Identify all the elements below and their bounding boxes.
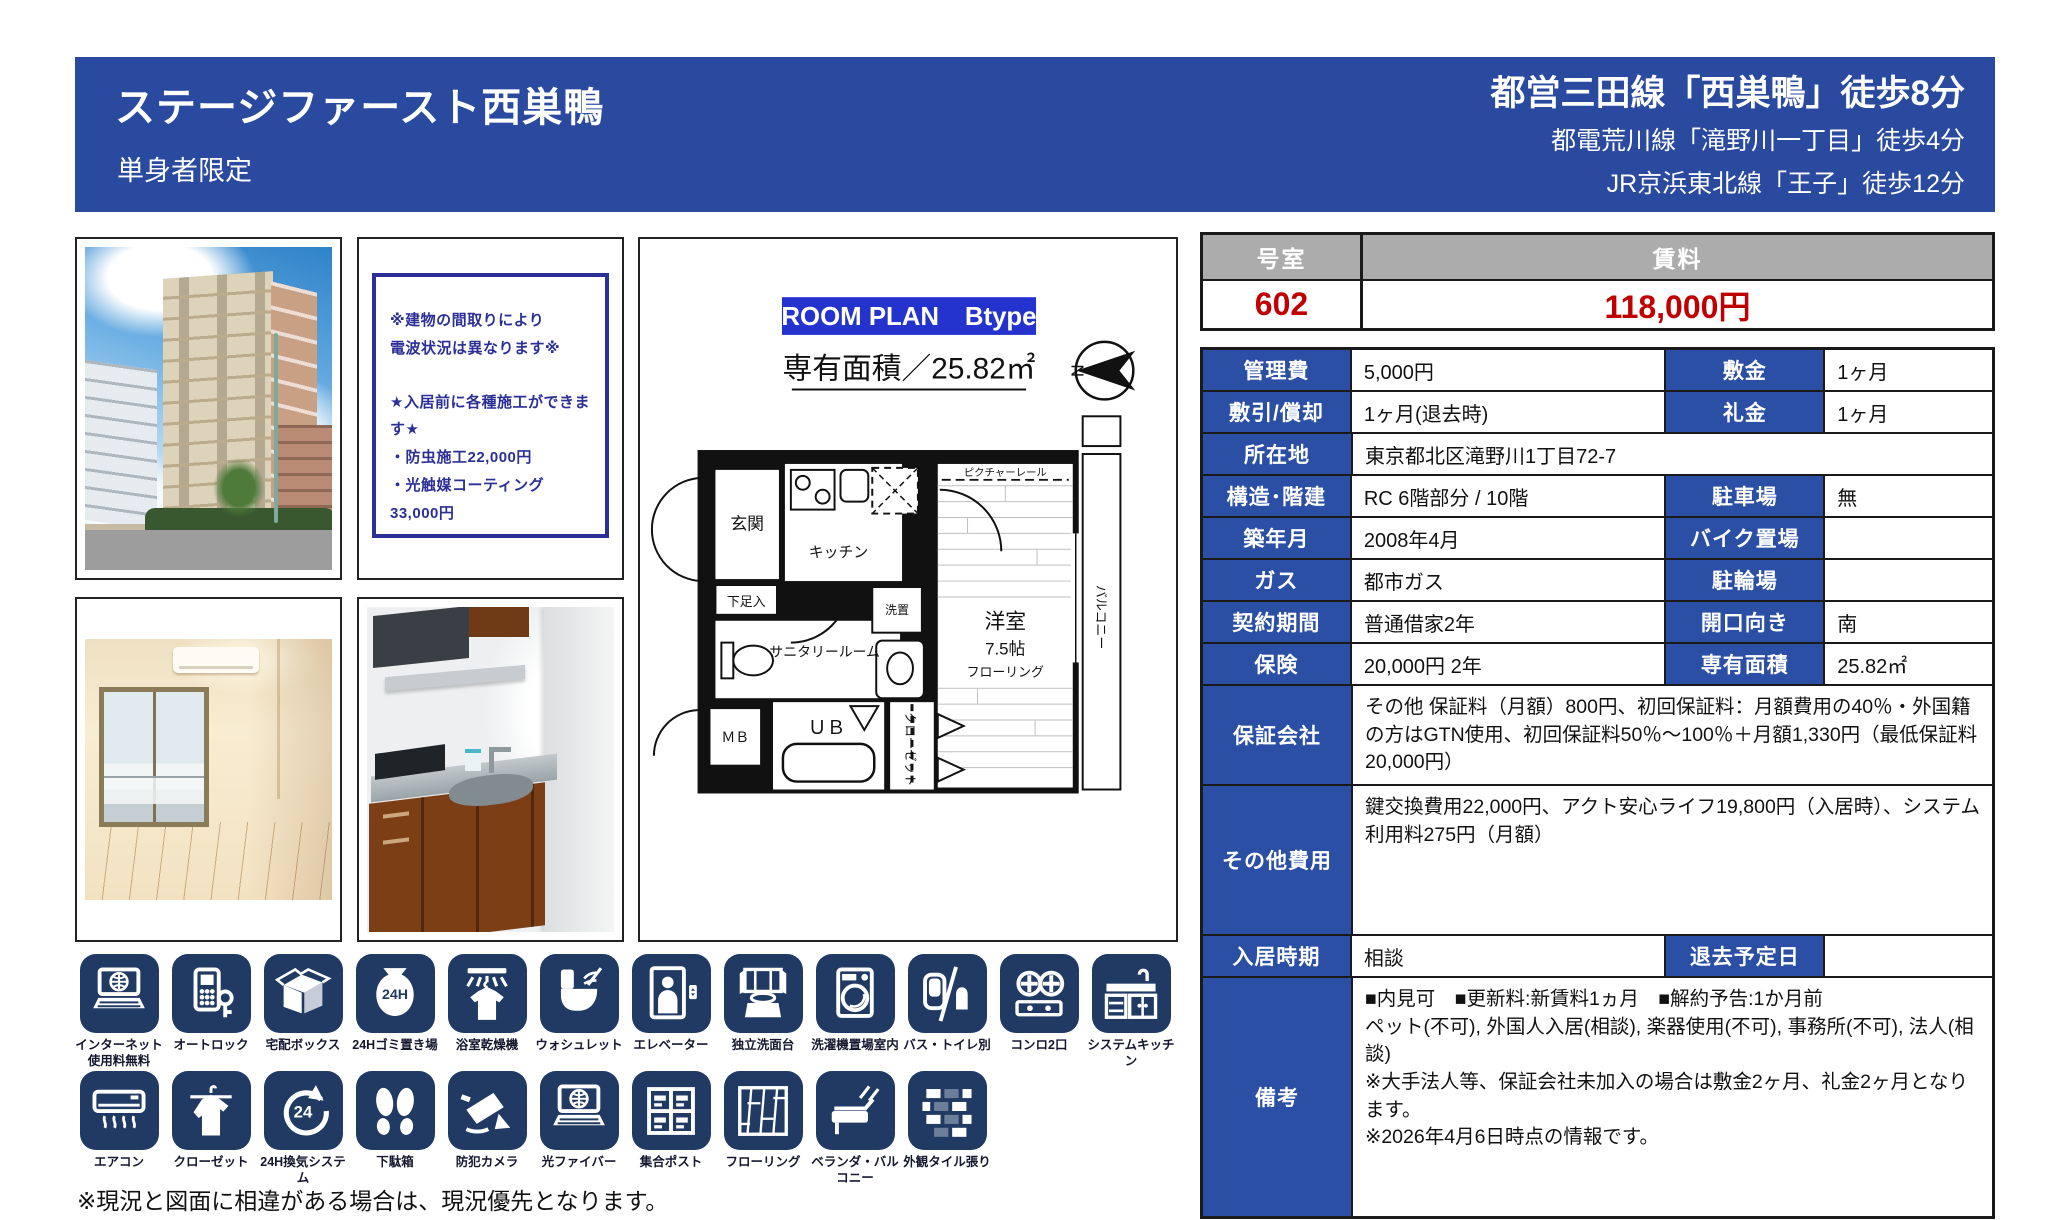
detail-label: その他費用 <box>1203 786 1353 934</box>
detail-row: その他費用鍵交換費用22,000円、アクト安心ライフ19,800円（入居時）、シ… <box>1203 786 1992 936</box>
trash-24h-icon: 24H <box>356 954 435 1033</box>
amenity-item: エアコン <box>73 1071 165 1186</box>
sanitary-label: サニタリールーム <box>769 644 880 660</box>
room-plan-label: ROOM PLAN Btype <box>781 303 1036 331</box>
detail-label: 駐輪場 <box>1666 560 1825 600</box>
detail-value: 東京都北区滝野川1丁目72-7 <box>1353 434 1992 474</box>
washlet-icon <box>540 954 619 1033</box>
compass-icon: N <box>1068 342 1136 400</box>
amenity-item: システムキッチン <box>1085 954 1177 1069</box>
detail-value: 2008年4月 <box>1352 518 1667 558</box>
washer-label: 洗置 <box>885 603 909 617</box>
air-conditioner <box>173 647 259 673</box>
amenity-item: 浴室乾燥機 <box>441 954 533 1069</box>
note-line: ※建物の間取りにより <box>390 307 591 335</box>
note-line: ・光触媒コーティング33,000円 <box>390 472 591 528</box>
ventilation-24h-icon: 24 <box>264 1071 343 1150</box>
building-exterior-photo <box>85 247 332 570</box>
delivery-box-icon <box>264 954 343 1033</box>
amenity-item: 外観タイル張り <box>901 1071 993 1186</box>
amenity-label: 独立洗面台 <box>732 1038 795 1054</box>
detail-row: 築年月2008年4月バイク置場 <box>1203 518 1992 560</box>
floor-plan-drawing: ROOM PLAN Btype 専有面積／25.82㎡ N <box>640 239 1176 940</box>
detail-value <box>1825 936 1992 976</box>
room-interior-photo <box>85 639 332 900</box>
detail-value: 鍵交換費用22,000円、アクト安心ライフ19,800円（入居時）、システム利用… <box>1353 786 1992 934</box>
detail-value: 相談 <box>1352 936 1667 976</box>
amenity-label: 外観タイル張り <box>903 1155 991 1171</box>
detail-label: 契約期間 <box>1203 602 1352 642</box>
detail-row: 備考■内見可 ■更新料:新賃料1ヵ月 ■解約予告:1か月前 ペット(不可), 外… <box>1203 978 1992 1216</box>
detail-value: 1ヶ月(退去時) <box>1352 392 1667 432</box>
vanity-icon <box>724 954 803 1033</box>
amenity-label: エアコン <box>94 1155 144 1171</box>
station-access-line: JR京浜東北線「王子」徒歩12分 <box>1491 166 1965 204</box>
tile-exterior-icon <box>908 1071 987 1150</box>
header-bar: ステージファースト西巣鴨 単身者限定 都営三田線「西巣鴨」徒歩8分都電荒川線「滝… <box>75 57 1995 212</box>
detail-value: その他 保証料（月額）800円、初回保証料：月額費用の40％・外国籍の方はGTN… <box>1353 686 1992 784</box>
amenity-item: 洗濯機置場室内 <box>809 954 901 1069</box>
detail-label: 構造･階建 <box>1203 476 1352 516</box>
detail-label: 築年月 <box>1203 518 1352 558</box>
property-title: ステージファースト西巣鴨 <box>115 75 604 133</box>
amenity-label: 下駄箱 <box>376 1155 414 1171</box>
amenity-label: 浴室乾燥機 <box>456 1038 519 1054</box>
property-flyer: ステージファースト西巣鴨 単身者限定 都営三田線「西巣鴨」徒歩8分都電荒川線「滝… <box>0 0 2056 1220</box>
western-room-size: 7.5帖 <box>985 640 1025 659</box>
detail-row: ガス都市ガス駐輪場 <box>1203 560 1992 602</box>
amenity-item: 防犯カメラ <box>441 1071 533 1186</box>
amenity-label: インターネット 使用料無料 <box>75 1038 163 1069</box>
notice-panel: ※建物の間取りにより電波状況は異なります※★入居前に各種施工ができます★・防虫施… <box>357 237 624 580</box>
amenity-item: 独立洗面台 <box>717 954 809 1069</box>
detail-label: 入居時期 <box>1203 936 1352 976</box>
detail-value <box>1825 518 1992 558</box>
detail-row: 契約期間普通借家2年開口向き南 <box>1203 602 1992 644</box>
detail-value: ■内見可 ■更新料:新賃料1ヵ月 ■解約予告:1か月前 ペット(不可), 外国人… <box>1353 978 1992 1216</box>
amenity-label: 宅配ボックス <box>266 1038 341 1054</box>
detail-row: 保証会社その他 保証料（月額）800円、初回保証料：月額費用の40％・外国籍の方… <box>1203 686 1992 786</box>
property-subtitle: 単身者限定 <box>117 149 252 188</box>
amenity-item: オートロック <box>165 954 257 1069</box>
room-number-header: 号室 <box>1203 235 1363 279</box>
stove-2-burner-icon <box>1000 954 1079 1033</box>
amenity-row-2: エアコンクローゼット2424H換気システム下駄箱防犯カメラ光ファイバー集合ポスト… <box>73 1071 993 1186</box>
svg-text:24H: 24H <box>382 987 408 1003</box>
detail-row: 入居時期相談退去予定日 <box>1203 936 1992 978</box>
kitchen-label: キッチン <box>809 545 869 561</box>
amenity-label: ベランダ・バルコニー <box>809 1155 901 1186</box>
washer-indoor-icon <box>816 954 895 1033</box>
amenity-item: コンロ2口 <box>993 954 1085 1069</box>
internet-laptop-icon <box>80 954 159 1033</box>
detail-label: 管理費 <box>1203 350 1352 390</box>
detail-value: 1ヶ月 <box>1825 350 1992 390</box>
flooring-icon <box>724 1071 803 1150</box>
veranda-icon <box>816 1071 895 1150</box>
amenity-item: ウォシュレット <box>533 954 625 1069</box>
security-camera-icon <box>448 1071 527 1150</box>
optical-fiber-icon <box>540 1071 619 1150</box>
detail-label: 保証会社 <box>1203 686 1353 784</box>
detail-value: 25.82㎡ <box>1825 644 1992 684</box>
detail-row: 管理費5,000円敷金1ヶ月 <box>1203 350 1992 392</box>
amenity-item: バス・トイレ別 <box>901 954 993 1069</box>
shoe-cabinet-label: 下足入 <box>727 594 766 609</box>
picture-rail-label: ピクチャーレール <box>964 467 1047 479</box>
detail-table: 管理費5,000円敷金1ヶ月敷引/償却1ヶ月(退去時)礼金1ヶ月所在地東京都北区… <box>1200 347 1995 1219</box>
rent-header: 賃料 <box>1363 235 1992 279</box>
detail-value <box>1825 560 1992 600</box>
elevator-icon <box>632 954 711 1033</box>
amenity-label: ウォシュレット <box>535 1038 622 1054</box>
amenity-item: 宅配ボックス <box>257 954 349 1069</box>
amenity-label: フローリング <box>725 1155 800 1171</box>
detail-label: 礼金 <box>1666 392 1825 432</box>
western-room-label: 洋室 <box>984 611 1026 634</box>
detail-label: 敷金 <box>1666 350 1825 390</box>
station-access-line: 都電荒川線「滝野川一丁目」徒歩4分 <box>1491 123 1965 161</box>
amenity-item: インターネット 使用料無料 <box>73 954 165 1069</box>
detail-row: 敷引/償却1ヶ月(退去時)礼金1ヶ月 <box>1203 392 1992 434</box>
amenity-item: 光ファイバー <box>533 1071 625 1186</box>
amenity-label: コンロ2口 <box>1011 1038 1068 1054</box>
note-spacer <box>390 363 591 389</box>
amenity-item: フローリング <box>717 1071 809 1186</box>
note-line: ★入居前に各種施工ができます★ <box>390 389 591 445</box>
svg-text:24: 24 <box>294 1102 313 1121</box>
amenity-item: 2424H換気システム <box>257 1071 349 1186</box>
station-access-list: 都営三田線「西巣鴨」徒歩8分都電荒川線「滝野川一丁目」徒歩4分JR京浜東北線「王… <box>1491 69 1965 203</box>
detail-row: 保険20,000円 2年専有面積25.82㎡ <box>1203 644 1992 686</box>
system-kitchen-icon <box>1092 954 1171 1033</box>
plan-area-label: 専有面積／25.82㎡ <box>782 353 1035 386</box>
closet-label: クローゼット <box>903 712 917 786</box>
amenity-item: 24H24Hゴミ置き場 <box>349 954 441 1069</box>
note-line: 電波状況は異なります※ <box>390 335 591 363</box>
price-table: 号室 賃料 602 118,000円 <box>1200 232 1995 331</box>
amenity-label: エレベーター <box>633 1038 708 1054</box>
amenity-item: 集合ポスト <box>625 1071 717 1186</box>
amenity-label: 光ファイバー <box>542 1155 617 1171</box>
amenity-label: 防犯カメラ <box>456 1155 519 1171</box>
amenity-label: バス・トイレ別 <box>903 1038 991 1054</box>
detail-label: 専有面積 <box>1666 644 1825 684</box>
detail-label: 保険 <box>1203 644 1352 684</box>
bath-toilet-separate-icon <box>908 954 987 1033</box>
amenity-item: 下駄箱 <box>349 1071 441 1186</box>
balcony-label: バルコニー <box>1094 585 1109 649</box>
detail-label: 駐車場 <box>1666 476 1825 516</box>
amenity-item: エレベーター <box>625 954 717 1069</box>
meter-box-label: ＭＢ <box>721 729 749 745</box>
detail-label: 敷引/償却 <box>1203 392 1352 432</box>
detail-value: 1ヶ月 <box>1825 392 1992 432</box>
kitchen-photo-panel <box>357 597 624 942</box>
bathroom-dryer-icon <box>448 954 527 1033</box>
detail-value: 5,000円 <box>1352 350 1667 390</box>
notice-box: ※建物の間取りにより電波状況は異なります※★入居前に各種施工ができます★・防虫施… <box>372 273 609 538</box>
amenity-label: オートロック <box>173 1038 248 1054</box>
entrance-label: 玄関 <box>730 514 764 533</box>
detail-label: バイク置場 <box>1666 518 1825 558</box>
detail-value: 20,000円 2年 <box>1352 644 1667 684</box>
closet-icon <box>172 1071 251 1150</box>
autolock-icon <box>172 954 251 1033</box>
station-access-line: 都営三田線「西巣鴨」徒歩8分 <box>1491 69 1965 118</box>
amenity-item: ベランダ・バルコニー <box>809 1071 901 1186</box>
aircon-icon <box>80 1071 159 1150</box>
room-photo-panel <box>75 597 342 942</box>
detail-value: 普通借家2年 <box>1352 602 1667 642</box>
room-number-value: 602 <box>1203 279 1363 328</box>
detail-value: 都市ガス <box>1352 560 1667 600</box>
footnote: ※現況と図面に相違がある場合は、現況優先となります。 <box>77 1182 668 1216</box>
floor-plan-panel: ROOM PLAN Btype 専有面積／25.82㎡ N <box>638 237 1178 942</box>
detail-row: 所在地東京都北区滝野川1丁目72-7 <box>1203 434 1992 476</box>
amenity-label: クローゼット <box>173 1155 248 1171</box>
detail-label: 開口向き <box>1666 602 1825 642</box>
note-line: ・防虫施工22,000円 <box>390 444 591 472</box>
amenity-label: 24Hゴミ置き場 <box>352 1038 437 1054</box>
rent-value: 118,000円 <box>1363 279 1992 328</box>
window <box>99 687 209 827</box>
detail-value: RC 6階部分 / 10階 <box>1352 476 1667 516</box>
detail-value: 南 <box>1825 602 1992 642</box>
kitchen-photo <box>367 607 614 932</box>
shoe-box-icon <box>356 1071 435 1150</box>
amenity-label: 洗濯機置場室内 <box>811 1038 899 1054</box>
amenity-label: 集合ポスト <box>640 1155 703 1171</box>
amenity-label: システムキッチン <box>1085 1038 1177 1069</box>
western-room-floor: フローリング <box>967 664 1044 679</box>
unit-bath-label: ＵＢ <box>808 717 846 738</box>
detail-value: 無 <box>1825 476 1992 516</box>
detail-row: 構造･階建RC 6階部分 / 10階駐車場無 <box>1203 476 1992 518</box>
detail-label: 退去予定日 <box>1666 936 1825 976</box>
amenity-row-1: インターネット 使用料無料オートロック宅配ボックス24H24Hゴミ置き場浴室乾燥… <box>73 954 1177 1069</box>
amenity-item: クローゼット <box>165 1071 257 1186</box>
detail-label: 備考 <box>1203 978 1353 1216</box>
detail-label: 所在地 <box>1203 434 1353 474</box>
detail-label: ガス <box>1203 560 1352 600</box>
building-photo-panel <box>75 237 342 580</box>
mailbox-icon <box>632 1071 711 1150</box>
